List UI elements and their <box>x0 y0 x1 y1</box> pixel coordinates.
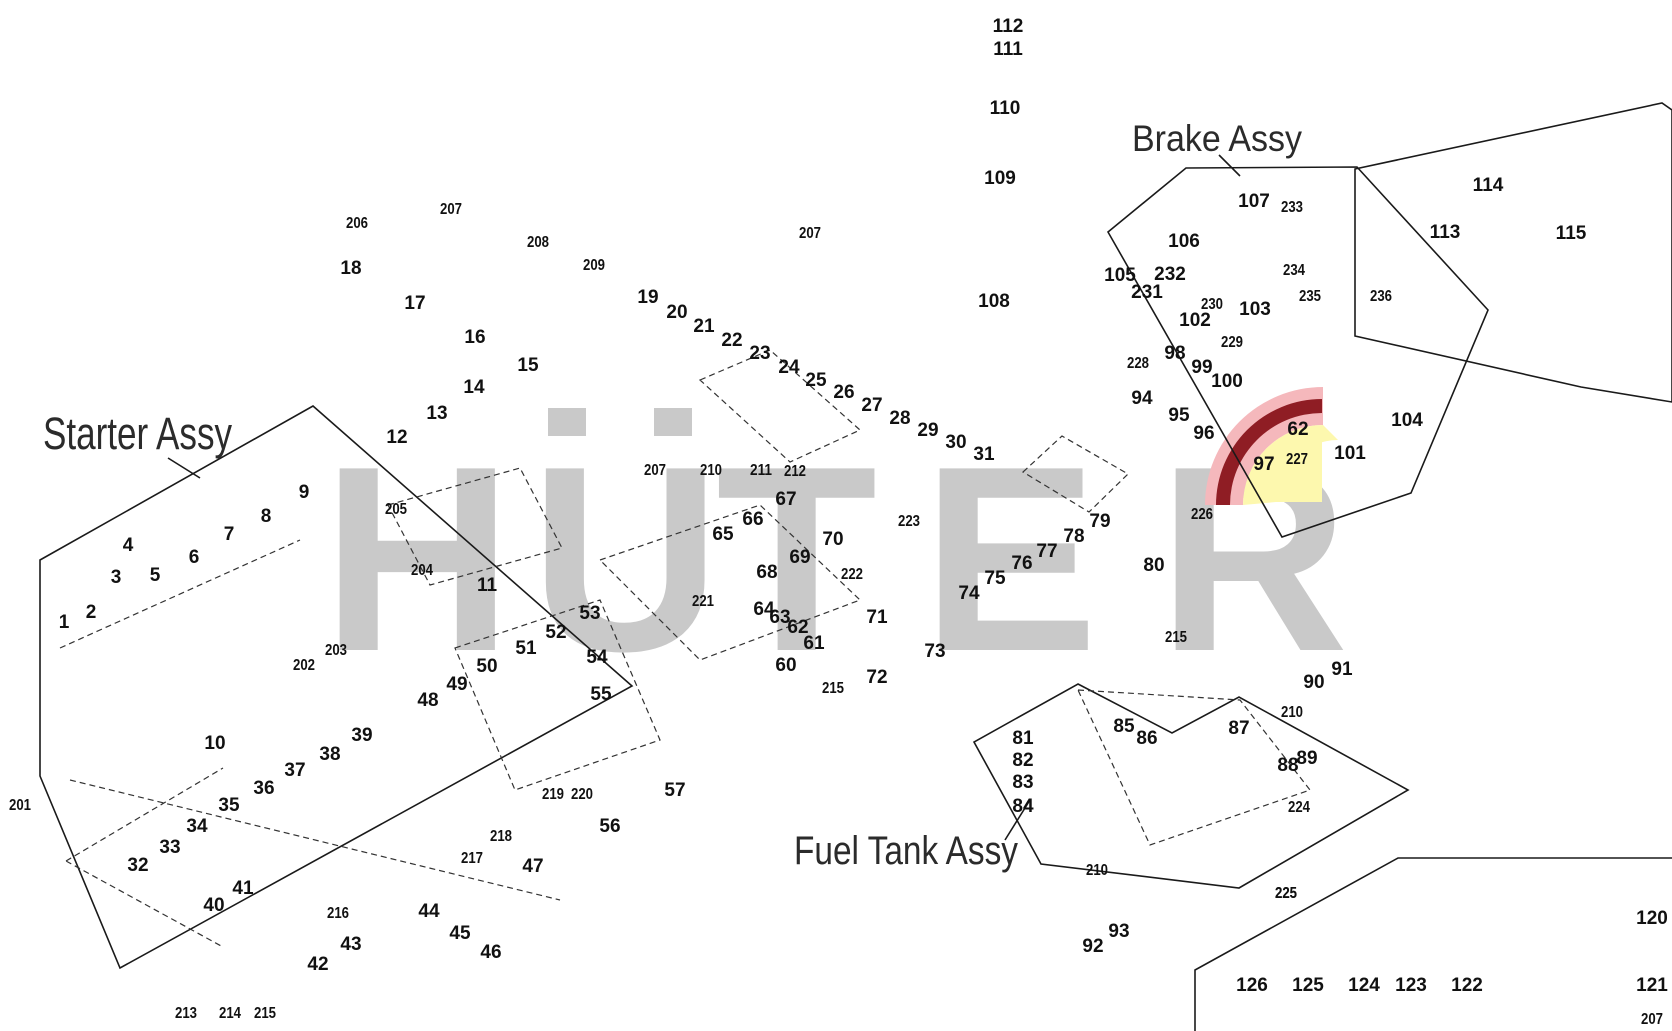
svg-text:14: 14 <box>463 377 485 398</box>
svg-text:99: 99 <box>1191 357 1212 378</box>
svg-text:214: 214 <box>219 1005 241 1022</box>
svg-text:48: 48 <box>417 690 438 711</box>
svg-text:68: 68 <box>756 562 777 583</box>
svg-text:22: 22 <box>721 330 742 351</box>
svg-text:233: 233 <box>1281 199 1303 216</box>
svg-text:95: 95 <box>1168 405 1190 426</box>
svg-text:56: 56 <box>599 816 620 837</box>
svg-text:44: 44 <box>418 901 440 922</box>
svg-text:210: 210 <box>1281 704 1303 721</box>
svg-text:90: 90 <box>1303 672 1324 693</box>
svg-text:204: 204 <box>411 562 433 579</box>
svg-text:222: 222 <box>841 566 863 583</box>
svg-text:120: 120 <box>1636 908 1668 929</box>
svg-text:46: 46 <box>480 942 501 963</box>
svg-text:35: 35 <box>218 795 240 816</box>
svg-text:80: 80 <box>1143 555 1164 576</box>
svg-text:21: 21 <box>693 316 715 337</box>
svg-text:218: 218 <box>490 828 512 845</box>
svg-text:211: 211 <box>750 462 772 479</box>
svg-text:212: 212 <box>784 463 806 480</box>
svg-text:112: 112 <box>993 16 1024 37</box>
svg-text:76: 76 <box>1011 553 1032 574</box>
svg-text:4: 4 <box>123 535 134 556</box>
svg-text:102: 102 <box>1179 310 1211 331</box>
svg-text:75: 75 <box>984 568 1006 589</box>
svg-text:9: 9 <box>299 482 310 503</box>
svg-text:110: 110 <box>990 98 1021 119</box>
svg-text:U: U <box>530 411 721 706</box>
svg-text:49: 49 <box>446 674 467 695</box>
svg-text:227: 227 <box>1286 451 1308 468</box>
svg-text:219: 219 <box>542 786 564 803</box>
svg-text:85: 85 <box>1113 716 1135 737</box>
svg-text:97: 97 <box>1253 454 1274 475</box>
svg-text:86: 86 <box>1136 728 1157 749</box>
svg-text:202: 202 <box>293 657 315 674</box>
svg-text:96: 96 <box>1193 423 1214 444</box>
svg-text:113: 113 <box>1430 222 1461 243</box>
svg-text:88: 88 <box>1277 755 1298 776</box>
svg-text:41: 41 <box>232 878 254 899</box>
svg-text:39: 39 <box>351 725 372 746</box>
svg-text:217: 217 <box>461 850 483 867</box>
svg-text:84: 84 <box>1012 796 1034 817</box>
svg-text:208: 208 <box>527 234 549 251</box>
svg-text:207: 207 <box>440 201 462 218</box>
svg-text:66: 66 <box>742 509 763 530</box>
svg-text:10: 10 <box>204 733 225 754</box>
svg-text:43: 43 <box>340 934 361 955</box>
svg-text:224: 224 <box>1288 799 1310 816</box>
svg-text:40: 40 <box>203 895 224 916</box>
svg-text:89: 89 <box>1296 748 1317 769</box>
svg-text:28: 28 <box>889 408 910 429</box>
svg-text:33: 33 <box>159 837 180 858</box>
svg-text:29: 29 <box>917 420 938 441</box>
svg-text:228: 228 <box>1127 355 1149 372</box>
svg-text:18: 18 <box>340 258 361 279</box>
svg-text:209: 209 <box>583 257 605 274</box>
svg-text:104: 104 <box>1391 410 1423 431</box>
svg-text:210: 210 <box>1086 862 1108 879</box>
svg-text:229: 229 <box>1221 334 1243 351</box>
svg-text:57: 57 <box>664 780 685 801</box>
svg-text:234: 234 <box>1283 262 1305 279</box>
svg-text:121: 121 <box>1636 975 1668 996</box>
svg-text:54: 54 <box>586 647 608 668</box>
svg-text:65: 65 <box>712 524 734 545</box>
svg-text:215: 215 <box>822 680 844 697</box>
svg-text:31: 31 <box>973 444 995 465</box>
svg-text:101: 101 <box>1334 443 1366 464</box>
svg-text:78: 78 <box>1063 526 1084 547</box>
svg-text:230: 230 <box>1201 296 1223 313</box>
svg-text:36: 36 <box>253 778 274 799</box>
svg-text:235: 235 <box>1299 288 1321 305</box>
svg-text:73: 73 <box>924 641 945 662</box>
svg-text:220: 220 <box>571 786 593 803</box>
svg-text:109: 109 <box>984 168 1016 189</box>
svg-text:62: 62 <box>787 617 808 638</box>
svg-text:225: 225 <box>1275 885 1297 902</box>
svg-text:34: 34 <box>186 816 208 837</box>
svg-text:51: 51 <box>515 638 537 659</box>
svg-text:98: 98 <box>1164 343 1185 364</box>
svg-text:E: E <box>922 411 1098 706</box>
svg-text:100: 100 <box>1211 371 1243 392</box>
svg-text:69: 69 <box>789 547 810 568</box>
svg-text:93: 93 <box>1108 921 1129 942</box>
svg-text:24: 24 <box>778 357 800 378</box>
svg-text:108: 108 <box>978 291 1010 312</box>
svg-text:207: 207 <box>799 225 821 242</box>
svg-text:92: 92 <box>1082 936 1103 957</box>
svg-text:201: 201 <box>9 797 31 814</box>
svg-text:79: 79 <box>1089 511 1110 532</box>
svg-text:2: 2 <box>86 602 97 623</box>
svg-text:26: 26 <box>833 382 854 403</box>
svg-text:8: 8 <box>261 506 272 527</box>
svg-text:203: 203 <box>325 642 347 659</box>
svg-text:83: 83 <box>1012 772 1033 793</box>
svg-text:5: 5 <box>150 565 161 586</box>
svg-text:216: 216 <box>327 905 349 922</box>
svg-text:7: 7 <box>224 524 235 545</box>
svg-text:15: 15 <box>517 355 539 376</box>
svg-text:25: 25 <box>805 370 827 391</box>
svg-text:Brake Assy: Brake Assy <box>1132 118 1302 159</box>
svg-text:71: 71 <box>866 607 888 628</box>
svg-text:3: 3 <box>111 567 122 588</box>
svg-text:23: 23 <box>749 343 770 364</box>
svg-text:45: 45 <box>449 923 471 944</box>
svg-text:64: 64 <box>753 599 775 620</box>
svg-text:126: 126 <box>1236 975 1268 996</box>
svg-text:Starter Assy: Starter Assy <box>43 408 232 459</box>
svg-text:50: 50 <box>476 656 497 677</box>
svg-text:72: 72 <box>866 667 887 688</box>
svg-text:38: 38 <box>319 744 340 765</box>
svg-text:207: 207 <box>1641 1011 1663 1028</box>
svg-text:67: 67 <box>775 489 796 510</box>
svg-text:17: 17 <box>404 293 425 314</box>
svg-text:13: 13 <box>426 403 447 424</box>
svg-text:122: 122 <box>1451 975 1483 996</box>
svg-text:70: 70 <box>822 529 843 550</box>
svg-text:20: 20 <box>666 302 687 323</box>
svg-text:53: 53 <box>579 603 600 624</box>
svg-text:Fuel Tank Assy: Fuel Tank Assy <box>794 829 1018 873</box>
svg-text:111: 111 <box>993 39 1023 60</box>
svg-text:236: 236 <box>1370 288 1392 305</box>
svg-text:42: 42 <box>307 954 328 975</box>
svg-text:215: 215 <box>254 1005 276 1022</box>
svg-text:125: 125 <box>1292 975 1324 996</box>
svg-text:123: 123 <box>1395 975 1427 996</box>
svg-text:1: 1 <box>59 612 70 633</box>
svg-text:115: 115 <box>1556 223 1587 244</box>
svg-text:27: 27 <box>861 395 882 416</box>
svg-text:207: 207 <box>644 462 666 479</box>
svg-text:6: 6 <box>189 547 200 568</box>
svg-text:91: 91 <box>1331 659 1353 680</box>
svg-text:114: 114 <box>1473 175 1504 196</box>
svg-text:223: 223 <box>898 513 920 530</box>
svg-text:32: 32 <box>127 855 148 876</box>
svg-text:213: 213 <box>175 1005 197 1022</box>
svg-text:37: 37 <box>284 760 305 781</box>
svg-text:81: 81 <box>1012 728 1034 749</box>
svg-text:103: 103 <box>1239 299 1271 320</box>
svg-text:16: 16 <box>464 327 485 348</box>
svg-text:11: 11 <box>477 575 498 596</box>
svg-text:94: 94 <box>1131 388 1153 409</box>
svg-text:82: 82 <box>1012 750 1033 771</box>
svg-text:221: 221 <box>692 593 714 610</box>
svg-text:205: 205 <box>385 501 407 518</box>
svg-text:231: 231 <box>1131 282 1163 303</box>
svg-text:87: 87 <box>1228 718 1249 739</box>
svg-text:30: 30 <box>945 432 966 453</box>
svg-text:232: 232 <box>1154 264 1186 285</box>
svg-text:62: 62 <box>1287 419 1308 440</box>
svg-text:215: 215 <box>1165 629 1187 646</box>
svg-text:106: 106 <box>1168 231 1200 252</box>
svg-text:77: 77 <box>1036 541 1057 562</box>
svg-text:47: 47 <box>522 856 543 877</box>
svg-text:206: 206 <box>346 215 368 232</box>
svg-text:124: 124 <box>1348 975 1380 996</box>
svg-text:55: 55 <box>590 684 612 705</box>
svg-text:226: 226 <box>1191 506 1213 523</box>
svg-text:52: 52 <box>545 622 566 643</box>
svg-text:107: 107 <box>1238 191 1270 212</box>
svg-text:12: 12 <box>386 427 407 448</box>
svg-text:74: 74 <box>958 583 980 604</box>
svg-text:210: 210 <box>700 462 722 479</box>
svg-text:19: 19 <box>637 287 658 308</box>
svg-text:60: 60 <box>775 655 796 676</box>
